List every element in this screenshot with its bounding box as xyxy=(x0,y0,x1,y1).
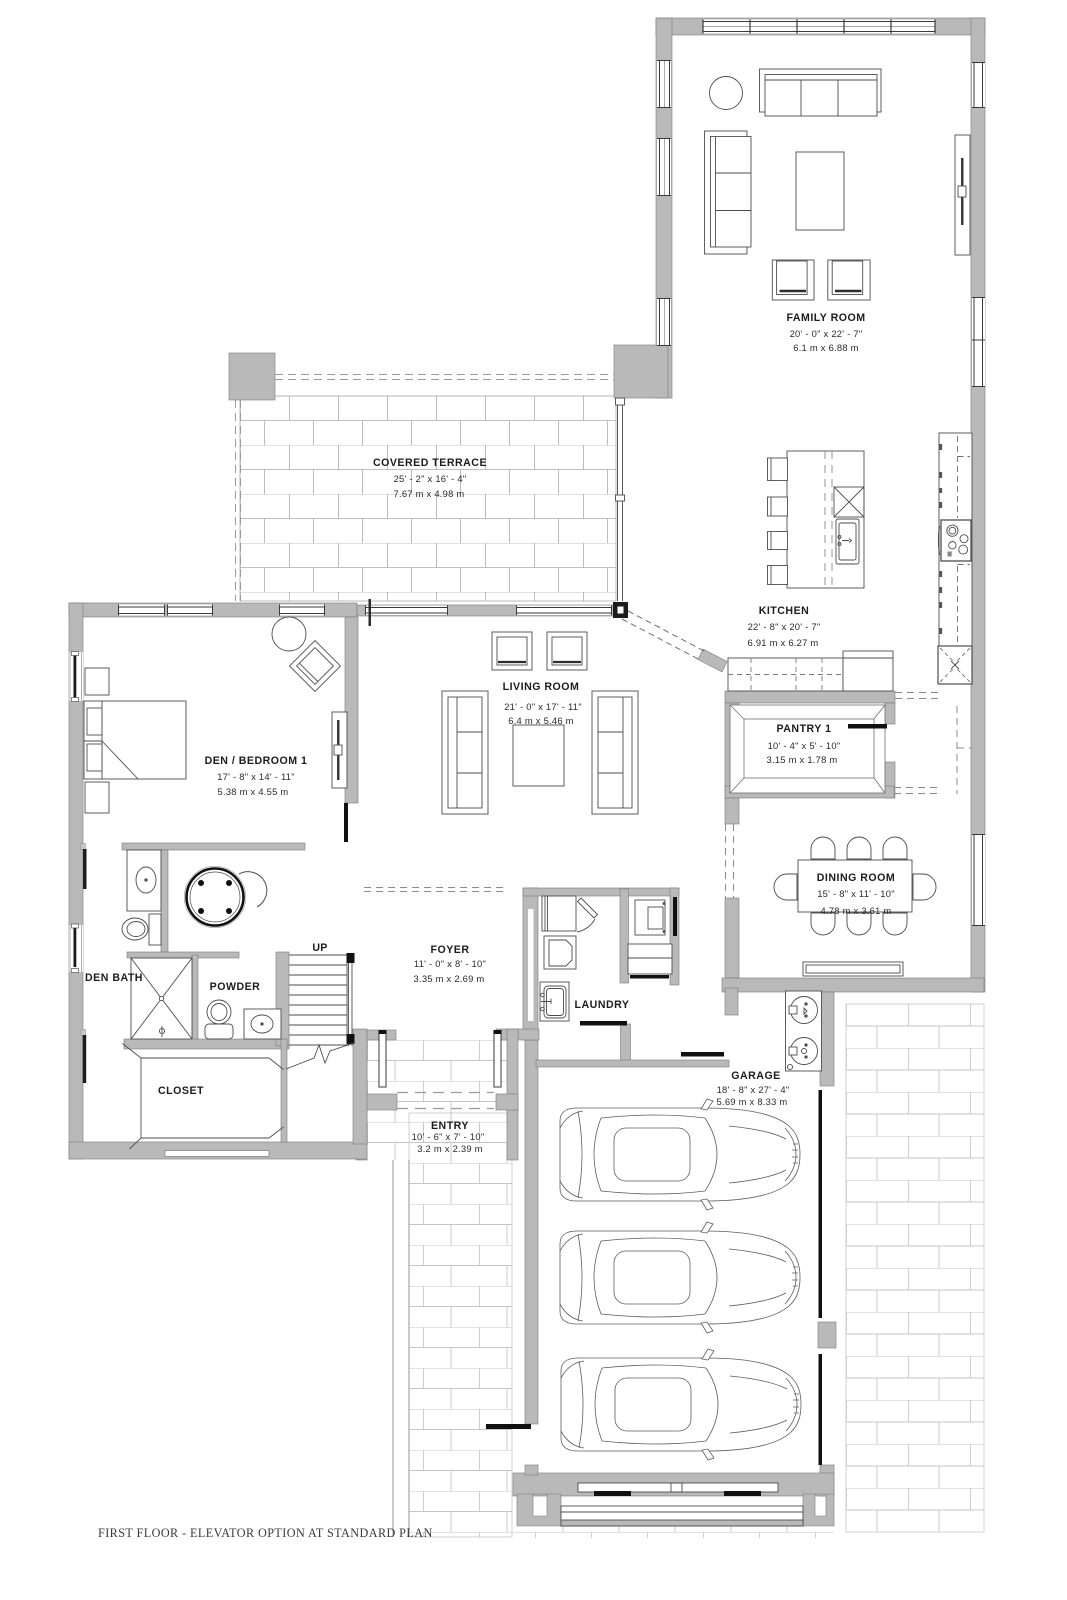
svg-text:22' - 8" x 20' - 7": 22' - 8" x 20' - 7" xyxy=(748,621,821,632)
svg-text:UP: UP xyxy=(312,942,327,954)
svg-text:LAUNDRY: LAUNDRY xyxy=(575,999,630,1011)
svg-text:10' - 4" x 5' - 10": 10' - 4" x 5' - 10" xyxy=(768,740,841,751)
svg-text:5.38 m x 4.55 m: 5.38 m x 4.55 m xyxy=(218,786,289,797)
svg-text:7.67 m x 4.98 m: 7.67 m x 4.98 m xyxy=(394,488,465,499)
svg-text:18' - 8" x 27' - 4": 18' - 8" x 27' - 4" xyxy=(717,1084,790,1095)
svg-text:CLOSET: CLOSET xyxy=(158,1085,204,1097)
svg-text:DEN / BEDROOM 1: DEN / BEDROOM 1 xyxy=(205,755,308,767)
svg-text:PANTRY 1: PANTRY 1 xyxy=(776,723,831,735)
svg-text:FIRST FLOOR - ELEVATOR OPTION: FIRST FLOOR - ELEVATOR OPTION AT STANDAR… xyxy=(98,1526,433,1540)
svg-text:15' - 8" x 11' - 10": 15' - 8" x 11' - 10" xyxy=(817,888,895,899)
svg-text:10' - 6" x 7' - 10": 10' - 6" x 7' - 10" xyxy=(412,1131,485,1142)
svg-text:3.2 m x 2.39 m: 3.2 m x 2.39 m xyxy=(417,1143,483,1154)
svg-text:6.91 m x 6.27 m: 6.91 m x 6.27 m xyxy=(748,637,819,648)
svg-text:KITCHEN: KITCHEN xyxy=(759,605,810,617)
svg-text:POWDER: POWDER xyxy=(210,981,261,993)
svg-text:GARAGE: GARAGE xyxy=(731,1070,781,1082)
svg-text:17' - 8" x 14' - 11": 17' - 8" x 14' - 11" xyxy=(217,771,295,782)
svg-text:3.15 m x 1.78 m: 3.15 m x 1.78 m xyxy=(767,754,838,765)
svg-text:LIVING ROOM: LIVING ROOM xyxy=(503,681,580,693)
svg-text:FOYER: FOYER xyxy=(431,944,470,956)
svg-text:6.1 m x 6.88 m: 6.1 m x 6.88 m xyxy=(793,342,859,353)
svg-text:5.69 m x 8.33 m: 5.69 m x 8.33 m xyxy=(717,1096,788,1107)
svg-text:DINING ROOM: DINING ROOM xyxy=(817,872,895,884)
svg-text:20' - 0" x 22' - 7": 20' - 0" x 22' - 7" xyxy=(790,328,863,339)
svg-text:DEN BATH: DEN BATH xyxy=(85,972,143,984)
svg-text:3.35 m x 2.69 m: 3.35 m x 2.69 m xyxy=(414,973,485,984)
svg-text:FAMILY ROOM: FAMILY ROOM xyxy=(786,312,865,324)
svg-text:6.4 m x 5.46 m: 6.4 m x 5.46 m xyxy=(508,715,574,726)
svg-text:11' - 0" x 8' - 10": 11' - 0" x 8' - 10" xyxy=(414,958,486,969)
svg-text:21' - 0" x 17' - 11": 21' - 0" x 17' - 11" xyxy=(504,701,582,712)
svg-text:4.78 m x 3.61 m: 4.78 m x 3.61 m xyxy=(821,905,892,916)
svg-text:COVERED TERRACE: COVERED TERRACE xyxy=(373,457,487,469)
svg-text:25' - 2" x 16' - 4": 25' - 2" x 16' - 4" xyxy=(394,473,467,484)
